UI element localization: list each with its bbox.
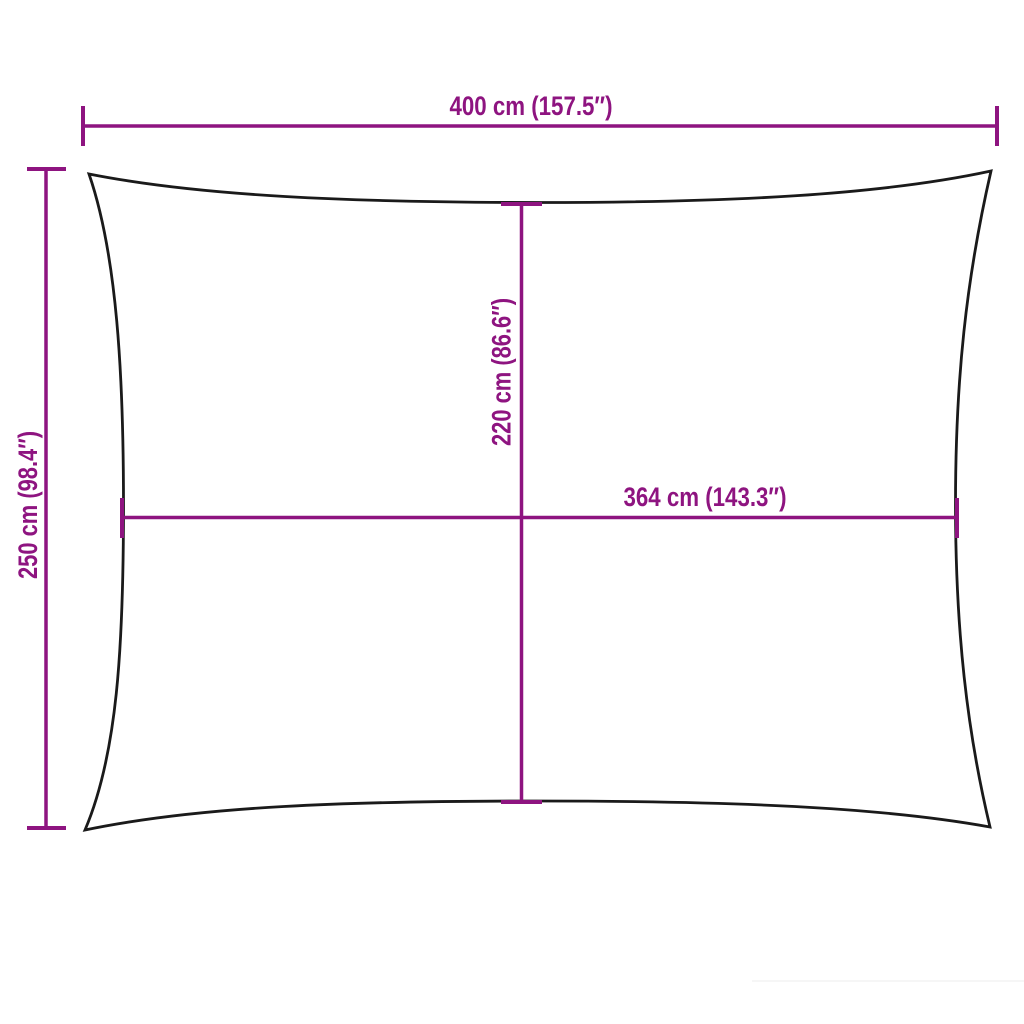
svg-text:364 cm (143.3″): 364 cm (143.3″) [624, 482, 787, 512]
svg-text:400 cm (157.5″): 400 cm (157.5″) [450, 91, 613, 121]
svg-text:220 cm (86.6″): 220 cm (86.6″) [487, 298, 517, 446]
svg-text:250 cm (98.4″): 250 cm (98.4″) [13, 431, 43, 579]
